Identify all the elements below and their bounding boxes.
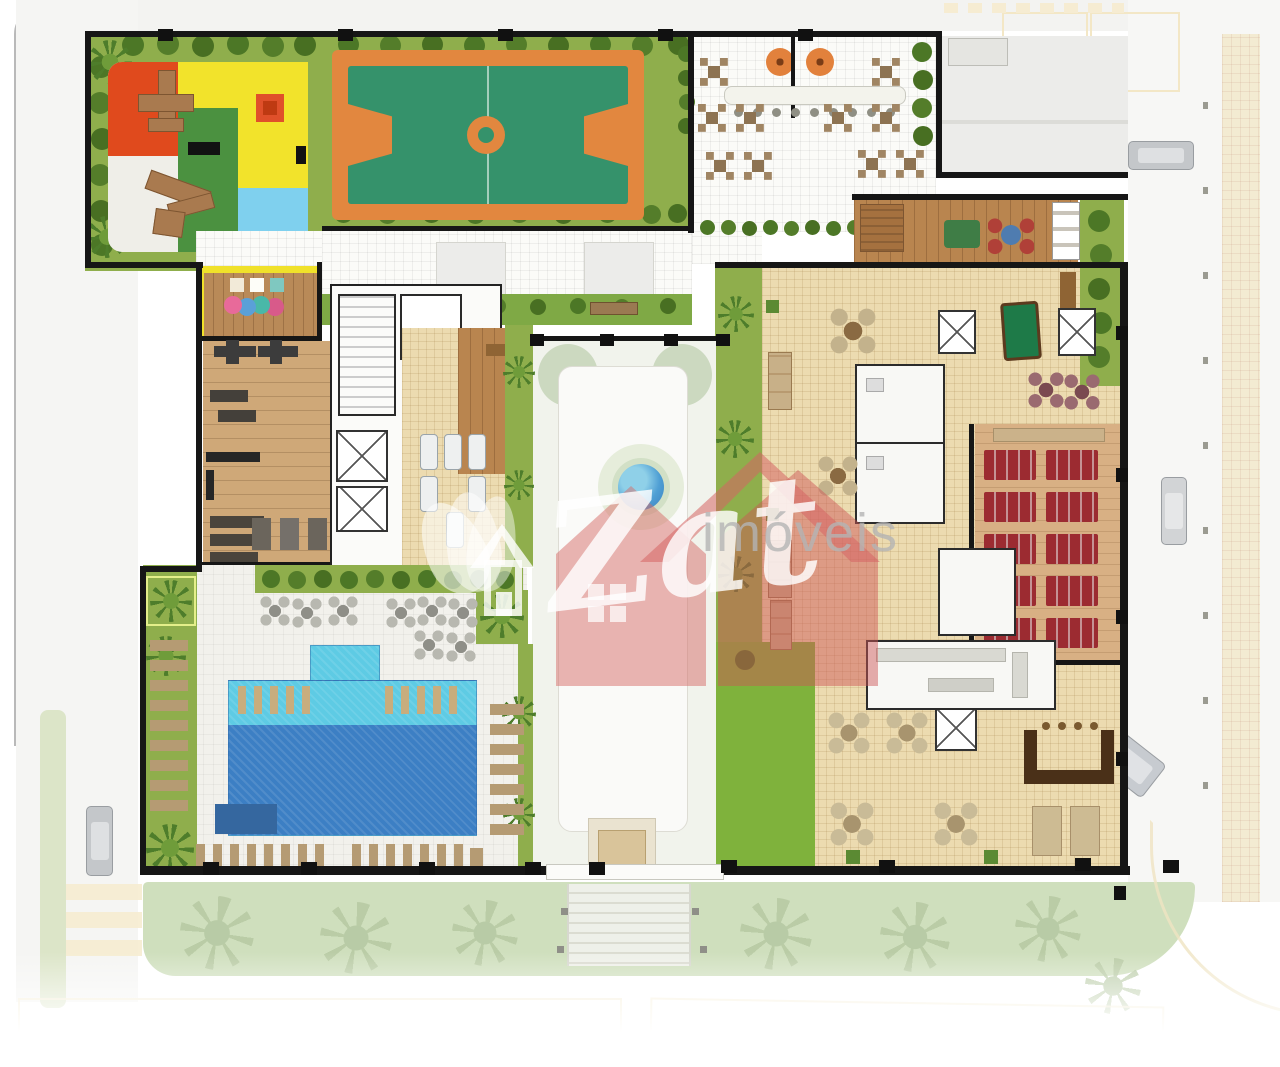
gatehouse [948, 38, 1008, 66]
play-structure [138, 94, 194, 112]
sandbox-inner [263, 101, 277, 115]
table-icon [858, 150, 886, 178]
cinema-seat-row [1046, 534, 1098, 564]
umbrella-table-icon [386, 598, 416, 628]
cinema-seat-row [984, 450, 1036, 480]
gate-post-row [530, 334, 544, 346]
hedge-row [700, 220, 715, 235]
palm-icon [504, 470, 534, 500]
gym-equipment [218, 410, 256, 422]
cinema-seat-row [984, 492, 1036, 522]
table-icon [736, 104, 764, 132]
service-room [938, 548, 1016, 636]
court-wall [688, 31, 694, 233]
party-table-icon [830, 802, 874, 846]
kitchen-counter [876, 648, 1006, 662]
hedge [912, 42, 932, 62]
gate-post-row [1116, 326, 1128, 340]
street-post-row [1203, 102, 1208, 109]
lounge-wall [715, 262, 1128, 268]
court-center-dot [478, 127, 494, 143]
car-icon [86, 806, 113, 876]
lounger-icon [444, 434, 462, 470]
grill-icon [806, 48, 834, 76]
gate-post-row [203, 862, 219, 875]
table-icon [824, 104, 852, 132]
playroom-wall [317, 262, 322, 341]
lounger-column [150, 640, 188, 814]
gym-mat [252, 518, 271, 550]
pool-steps [215, 804, 277, 834]
round-table-icon [818, 456, 858, 496]
car-icon [1161, 477, 1187, 545]
lounger-column [490, 704, 524, 836]
play-bench [296, 146, 306, 164]
bar-counter-bbq [724, 86, 906, 105]
car-icon [1128, 141, 1194, 170]
kids-playroom [203, 266, 319, 338]
elevator-icon [1058, 308, 1096, 356]
bbq-wall [936, 31, 942, 178]
page-fade [0, 952, 1280, 1067]
billiards-table [1000, 301, 1042, 362]
boundary-wall [85, 31, 942, 37]
gym-equipment [210, 390, 248, 402]
watermark-house-door-icon [496, 592, 512, 616]
dining-table [1070, 806, 1100, 856]
courtyard-wall [532, 336, 718, 341]
round-table-icon [830, 308, 876, 354]
umbrella-table-icon [292, 598, 322, 628]
umbrella-table-icon [448, 598, 478, 628]
boundary-wall [140, 566, 146, 874]
cinema-seat-row [1046, 492, 1098, 522]
elevator-icon [336, 486, 388, 532]
gate-bar [546, 864, 724, 880]
gate-post-row [158, 29, 173, 41]
deck-lounger [860, 204, 904, 252]
boundary-wall [1120, 262, 1128, 875]
table-icon [744, 152, 772, 180]
boundary-wall [140, 566, 202, 572]
wood-bench [486, 344, 506, 356]
play-table [224, 296, 242, 314]
boundary-wall [85, 262, 203, 268]
play-structure [152, 208, 185, 238]
umbrella-table-icon [446, 632, 476, 662]
walkway [692, 232, 762, 264]
umbrella-table-icon [260, 596, 290, 626]
stool-row [1042, 722, 1050, 730]
table-icon [872, 104, 900, 132]
planter-icon [984, 850, 998, 864]
walkway [196, 231, 322, 266]
umbrella-table-icon [417, 596, 447, 626]
restroom-fixture [866, 378, 884, 392]
cinema-seat-row [1046, 450, 1098, 480]
grill-icon [766, 48, 794, 76]
sidewalk-right [1222, 34, 1260, 902]
gym-equipment [270, 340, 282, 364]
palm-icon [503, 356, 535, 388]
elevator-icon [336, 430, 388, 482]
party-table-icon [886, 712, 928, 754]
stairwell [338, 294, 396, 416]
stair-post [561, 908, 568, 915]
courtyard-bench [598, 830, 646, 866]
watermark-brand-suffix: imóveis [702, 502, 902, 562]
in-pool-loungers [385, 686, 463, 714]
gym-equipment [226, 340, 239, 364]
party-table-icon [828, 712, 870, 754]
umbrella-table-icon [328, 596, 358, 626]
weight-rack [206, 470, 214, 500]
walkway-wall [322, 226, 694, 231]
driveway-wall [936, 172, 1128, 178]
restroom-fixture [866, 456, 884, 470]
table-icon [698, 104, 726, 132]
kitchen-counter [1012, 652, 1028, 698]
bush-row [262, 570, 280, 588]
pool-entry [310, 645, 380, 685]
boundary-wall [85, 31, 91, 268]
wicker-table-icon [1028, 372, 1064, 408]
lounger-icon [468, 434, 486, 470]
cinema-screen [993, 428, 1105, 442]
play-structure [148, 118, 184, 132]
planter-icon [846, 850, 860, 864]
bar-counter [1101, 730, 1114, 784]
weight-rack [206, 452, 260, 462]
playroom-trim [203, 266, 319, 273]
planter-icon [766, 300, 779, 313]
table-icon [700, 58, 728, 86]
wicker-table-icon [1064, 374, 1100, 410]
palm-icon [146, 824, 194, 872]
lounger-icon [420, 434, 438, 470]
kitchen-island [928, 678, 994, 692]
party-table-icon [934, 802, 978, 846]
in-pool-loungers [238, 686, 312, 714]
palm-icon [718, 296, 754, 332]
cinema-seat-row [1046, 576, 1098, 606]
sofa [768, 352, 792, 410]
wing-wall [852, 194, 1128, 200]
exercise-mat [944, 220, 980, 248]
watermark-brand-script: Zat [537, 452, 839, 685]
palm-icon [150, 580, 192, 622]
boundary-wall [196, 262, 202, 572]
umbrella-table-icon [414, 630, 444, 660]
dining-table [1032, 806, 1062, 856]
bush-row [1088, 210, 1110, 232]
elevator-icon [938, 310, 976, 354]
locker-shelf [1052, 202, 1080, 260]
table-icon [706, 152, 734, 180]
driveway-curb [942, 120, 1128, 124]
elevator-icon [935, 705, 977, 751]
site-plan: Zat imóveis [0, 0, 1280, 1067]
play-bench [188, 142, 220, 155]
bbq-divider-wall [791, 36, 795, 118]
toy-shelf [230, 278, 244, 292]
deck-table-chairs [988, 212, 1034, 258]
bench [590, 302, 638, 315]
table-icon [872, 58, 900, 86]
crosswalk-top [944, 3, 1124, 13]
table-icon [896, 150, 924, 178]
restroom-partition [857, 442, 943, 444]
